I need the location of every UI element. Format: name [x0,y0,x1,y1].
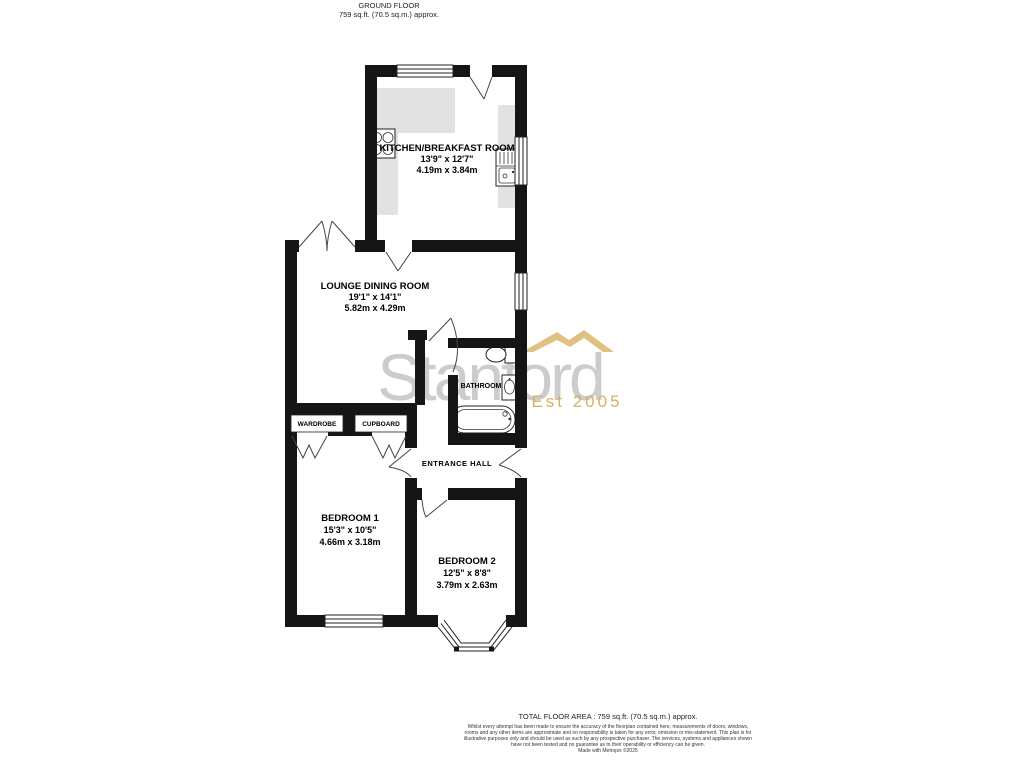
wardrobe-bifold-door [292,436,327,458]
kitchen-side-window [515,137,527,185]
floorplan-page: GROUND FLOOR 759 sq.ft. (70.5 sq.m.) app… [0,0,1024,768]
bedroom2-bay-window [438,620,512,652]
kitchen-label: KITCHEN/BREAKFAST ROOM [379,143,514,154]
lounge-french-doors [299,221,355,251]
kitchen-top-window [397,65,453,77]
bedroom1-dim-imperial: 15'3" x 10'5" [324,525,377,535]
kitchen-dim-metric: 4.19m x 3.84m [416,165,477,175]
wardrobe-label: WARDROBE [298,421,337,428]
kitchen-dim-imperial: 13'9" x 12'7" [421,154,474,164]
basin-symbol [502,375,517,400]
entrance-hall-label: ENTRANCE HALL [422,459,492,468]
disclaimer-text: Whilst every attempt has been made to en… [462,724,754,748]
floorplan-footer: TOTAL FLOOR AREA : 759 sq.ft. (70.5 sq.m… [448,712,768,754]
lounge-dim-imperial: 19'1" x 14'1" [349,292,402,302]
bedroom1-dim-metric: 4.66m x 3.18m [319,537,380,547]
toilet-symbol [486,346,516,363]
bedroom2-dim-metric: 3.79m x 2.63m [436,580,497,590]
kitchen-lounge-door [386,252,411,271]
bathroom-label: BATHROOM [461,383,502,390]
lounge-side-window [515,273,527,310]
watermark-est-text: Est 2005 [531,392,622,411]
total-floor-area: TOTAL FLOOR AREA : 759 sq.ft. (70.5 sq.m… [448,712,768,722]
cupboard-bifold-door [372,436,406,458]
bedroom2-door [422,500,447,517]
lounge-dim-metric: 5.82m x 4.29m [344,303,405,313]
bedroom1-label: BEDROOM 1 [321,513,379,524]
bedroom2-dim-imperial: 12'5" x 8'8" [443,568,491,578]
bedroom2-label: BEDROOM 2 [438,556,496,567]
kitchen-exterior-door [470,77,492,99]
floorplan-drawing: Stanford Est 2005 [0,0,1024,768]
made-with-credit: Made with Metropix ©2025 [448,748,768,754]
bathtub-symbol [451,406,515,433]
bedroom1-window [325,615,383,627]
cupboard-label: CUPBOARD [362,421,400,428]
lounge-label: LOUNGE DINING ROOM [321,281,430,292]
front-entrance-door [499,449,521,477]
